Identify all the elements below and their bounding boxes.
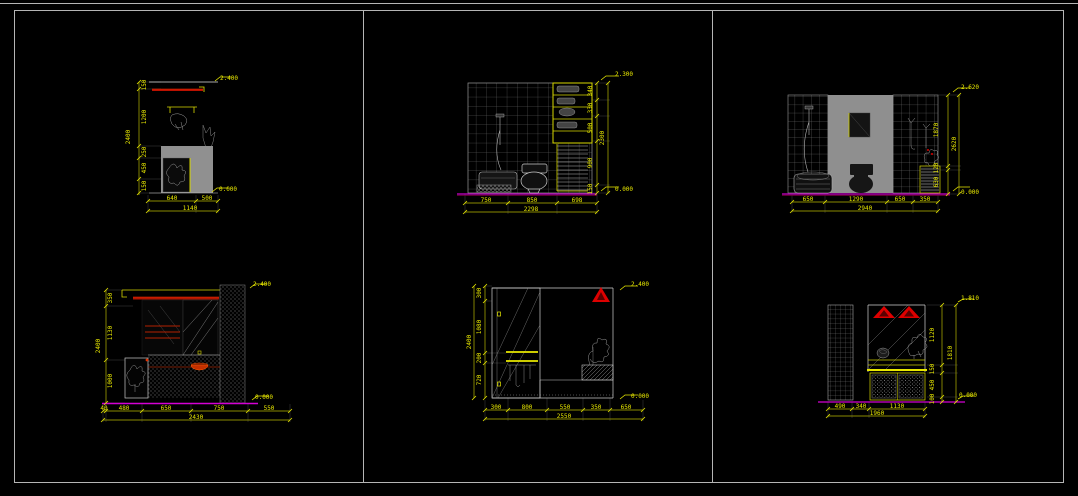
dim-label: 1200 (142, 110, 148, 124)
dim-total-label: 2400 (126, 130, 132, 144)
dim-label: 1130 (108, 326, 114, 340)
dim-label: 300 (491, 405, 502, 411)
dim-label: 450 (930, 380, 936, 391)
dim-label: 550 (560, 405, 571, 411)
elevation-drawing-top-middle (445, 60, 640, 225)
dim-label: 1000 (108, 374, 114, 388)
dim-label: 1870 (934, 123, 940, 137)
dim-total-label: 2550 (557, 414, 571, 420)
elevation-marker: 0.000 (631, 394, 649, 400)
dim-label: 490 (835, 404, 846, 410)
elevation-drawing-top-right (770, 80, 978, 220)
dim-total-label: 2940 (858, 206, 872, 212)
dim-label: 650 (161, 406, 172, 412)
dim-label: 350 (591, 405, 602, 411)
dim-label: 500 (588, 123, 594, 134)
dim-label: 900 (588, 158, 594, 169)
dim-label: 698 (572, 198, 583, 204)
elevation-marker: 0.000 (219, 187, 237, 193)
dim-total-label: 2300 (600, 131, 606, 145)
elevation-drawing-bottom-right (810, 285, 980, 420)
elevation-marker: 0.000 (961, 190, 979, 196)
dim-label: 500 (202, 196, 213, 202)
dim-label: 640 (167, 196, 178, 202)
dim-label: 150 (142, 181, 148, 192)
border-top-inner (14, 10, 1064, 11)
dim-label: 40 (100, 406, 107, 412)
elevation-marker: 2.620 (961, 85, 979, 91)
elevation-marker: 0.000 (255, 395, 273, 401)
panel-divider-right (712, 10, 713, 482)
panel-divider-left (363, 10, 364, 482)
dim-total-label: 2400 (467, 335, 473, 349)
border-left (14, 10, 15, 482)
dim-label: 450 (142, 163, 148, 174)
elevation-marker: 2.400 (253, 282, 271, 288)
dim-label: 120 (934, 163, 940, 174)
dim-total-label: 2400 (96, 339, 102, 353)
elevation-marker: 0.000 (959, 393, 977, 399)
dim-label: 850 (527, 198, 538, 204)
dim-label: 340 (856, 404, 867, 410)
dim-total-label: 2430 (189, 415, 203, 421)
dim-label: 1120 (930, 328, 936, 342)
dim-label: 100 (930, 394, 936, 405)
dim-label: 1080 (477, 320, 483, 334)
dim-label: 550 (264, 406, 275, 412)
dim-label: 150 (588, 184, 594, 195)
dim-label: 650 (803, 197, 814, 203)
border-right (1063, 10, 1064, 482)
elevation-marker: 2.400 (220, 76, 238, 82)
dim-label: 800 (522, 405, 533, 411)
dim-label: 350 (108, 293, 114, 304)
dim-label: 350 (920, 197, 931, 203)
dim-label: 480 (119, 406, 130, 412)
dim-label: 650 (895, 197, 906, 203)
dim-total-label: 1960 (870, 411, 884, 417)
dim-label: 150 (930, 364, 936, 375)
dim-label: 340 (588, 86, 594, 97)
dim-label: 720 (477, 375, 483, 386)
dim-label: 150 (142, 80, 148, 91)
dim-label: 300 (477, 288, 483, 299)
dim-label: 250 (142, 147, 148, 158)
border-bottom (14, 482, 1064, 483)
dim-total-label: 2298 (524, 207, 538, 213)
dim-label: 650 (621, 405, 632, 411)
dim-label: 750 (214, 406, 225, 412)
border-top-outer (0, 3, 1078, 4)
dim-total-label: 1810 (948, 346, 954, 360)
dim-label: 1290 (849, 197, 863, 203)
elevation-drawing-top-left (115, 70, 250, 222)
elevation-marker: 2.400 (631, 282, 649, 288)
dim-label: 330 (588, 103, 594, 114)
dim-total-label: 2620 (952, 137, 958, 151)
elevation-marker: 2.300 (615, 72, 633, 78)
cad-drawing-canvas[interactable]: 150 1200 250 450 150 2400 640 500 1140 2… (0, 0, 1078, 496)
dim-label: 750 (481, 198, 492, 204)
dim-label: 1130 (890, 404, 904, 410)
dim-total-label: 1140 (183, 206, 197, 212)
elevation-marker: 1.810 (961, 296, 979, 302)
dim-label: 630 (934, 177, 940, 188)
dim-label: 200 (477, 353, 483, 364)
elevation-marker: 0.000 (615, 187, 633, 193)
